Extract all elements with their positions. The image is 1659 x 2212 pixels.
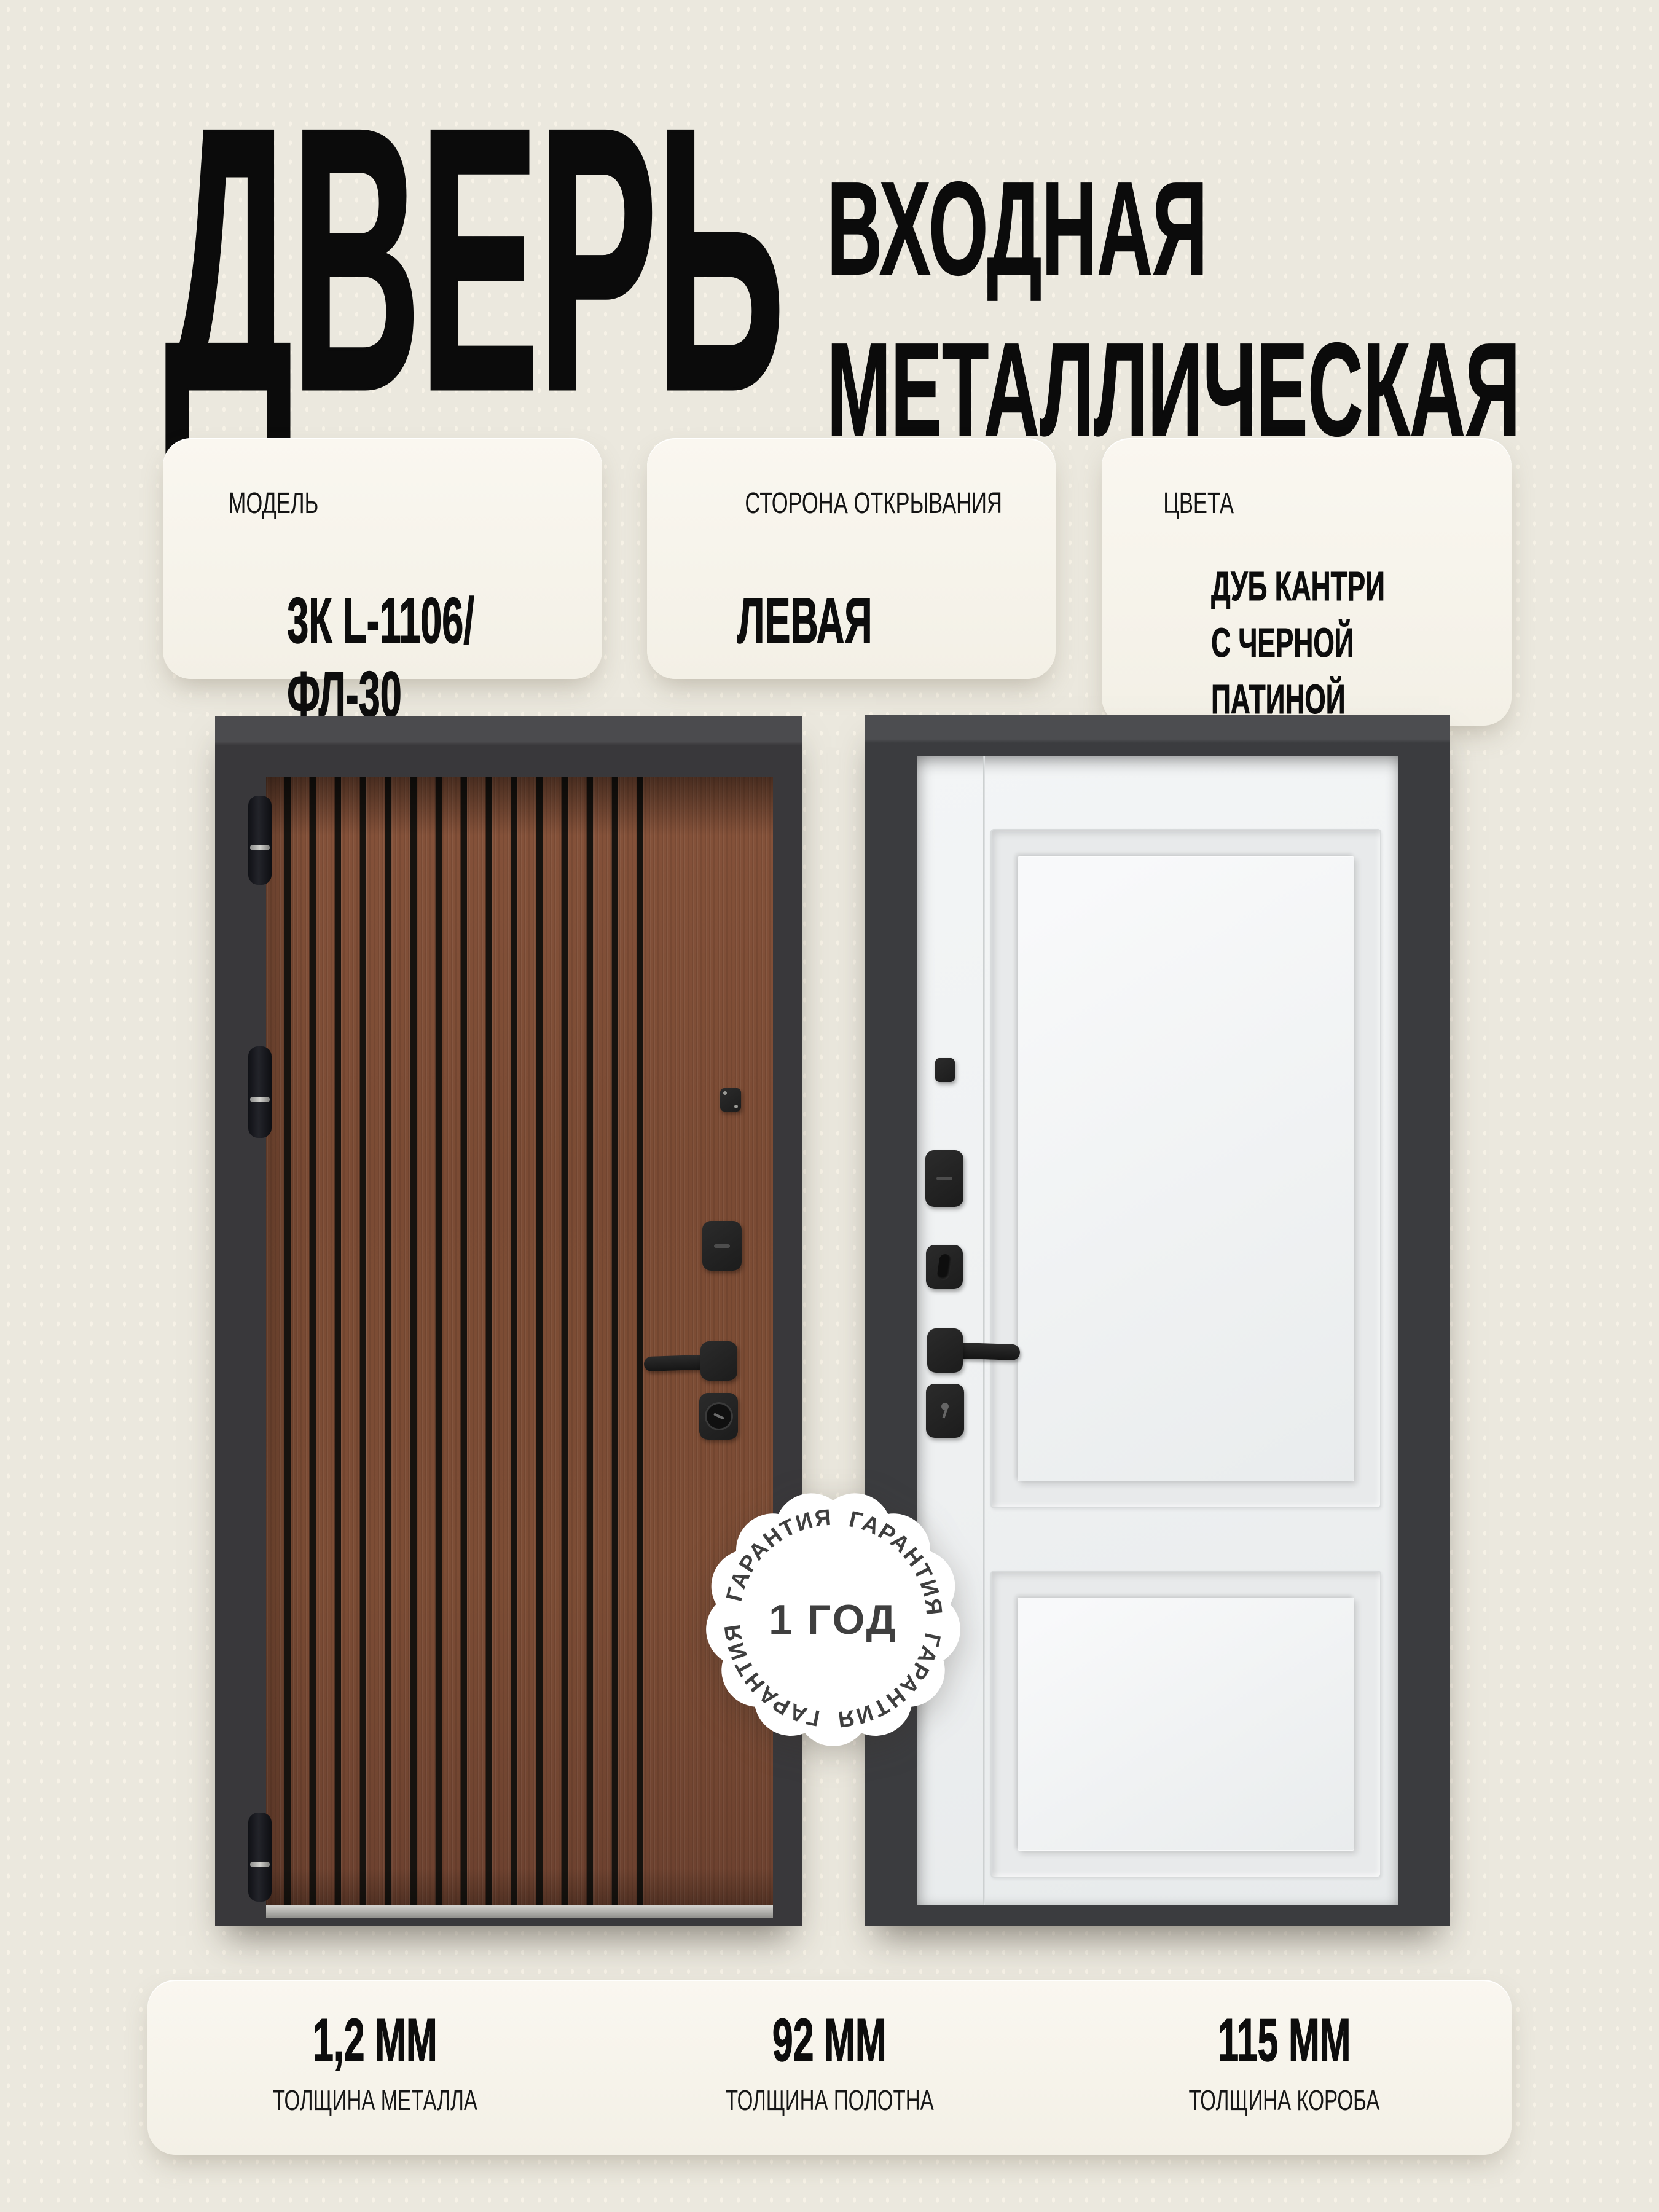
model-label: МОДЕЛЬ bbox=[229, 487, 319, 520]
raised-panel-top bbox=[990, 829, 1381, 1508]
door-hinge-bottom bbox=[248, 1813, 272, 1902]
info-card-model: МОДЕЛЬ 3К L-1106/ФЛ-30 bbox=[163, 438, 602, 679]
spec-metal-thickness: 1,2 ММ ТОЛЩИНА МЕТАЛЛА bbox=[147, 1980, 602, 2155]
colors-value-line-2: С ЧЕРНОЙ ПАТИНОЙ bbox=[1211, 615, 1450, 728]
thumbturn-escutcheon bbox=[926, 1245, 963, 1289]
info-card-colors: ЦВЕТА ДУБ КАНТРИ С ЧЕРНОЙ ПАТИНОЙ VELLUT… bbox=[1102, 438, 1512, 726]
peephole-escutcheon bbox=[935, 1058, 955, 1082]
lock-cylinder bbox=[705, 1402, 733, 1430]
subtitle-line-2: МЕТАЛЛИЧЕСКАЯ bbox=[827, 323, 1520, 455]
door-product-banner: ДВЕРЬ ВХОДНАЯ МЕТАЛЛИЧЕСКАЯ МОДЕЛЬ 3К L-… bbox=[0, 0, 1659, 2212]
spec-label: ТОЛЩИНА МЕТАЛЛА bbox=[272, 2084, 477, 2117]
spec-label: ТОЛЩИНА ПОЛОТНА bbox=[726, 2084, 934, 2117]
door-hinge-top bbox=[248, 796, 272, 885]
raised-panel-bottom bbox=[990, 1571, 1381, 1878]
colors-value-line-1: ДУБ КАНТРИ bbox=[1211, 559, 1450, 615]
lock-cylinder-escutcheon bbox=[699, 1393, 738, 1440]
spec-value: 1,2 ММ bbox=[313, 2006, 437, 2075]
keyhole-icon bbox=[941, 1403, 949, 1410]
info-card-opening-side: СТОРОНА ОТКРЫВАНИЯ ЛЕВАЯ bbox=[647, 438, 1056, 679]
lock-cover-plate bbox=[925, 1150, 963, 1207]
specifications-card: 1,2 ММ ТОЛЩИНА МЕТАЛЛА 92 ММ ТОЛЩИНА ПОЛ… bbox=[147, 1980, 1512, 2155]
door-hinge-middle bbox=[248, 1046, 272, 1138]
opening-side-value: ЛЕВАЯ bbox=[737, 584, 872, 658]
opening-side-label: СТОРОНА ОТКРЫВАНИЯ bbox=[745, 487, 1002, 520]
colors-label: ЦВЕТА bbox=[1163, 487, 1234, 520]
threshold-strip bbox=[266, 1905, 773, 1918]
subtitle-line-1: ВХОДНАЯ bbox=[827, 162, 1207, 294]
page-title: ДВЕРЬ bbox=[165, 73, 783, 447]
stile-groove bbox=[983, 756, 985, 1905]
lock-cover-plate bbox=[702, 1221, 742, 1271]
thumbturn-knob bbox=[936, 1253, 952, 1281]
spec-label: ТОЛЩИНА КОРОБА bbox=[1189, 2084, 1380, 2117]
model-value: 3К L-1106/ФЛ-30 bbox=[287, 584, 524, 732]
warranty-duration-text: 1 ГОД bbox=[769, 1596, 898, 1643]
keyhole-escutcheon bbox=[926, 1384, 964, 1438]
door-handle-rose bbox=[927, 1328, 963, 1373]
door-handle-rose bbox=[700, 1341, 737, 1381]
spec-value: 115 ММ bbox=[1218, 2006, 1351, 2075]
spec-frame-thickness: 115 ММ ТОЛЩИНА КОРОБА bbox=[1057, 1980, 1512, 2155]
spec-value: 92 ММ bbox=[772, 2006, 887, 2075]
door-leaf-white bbox=[917, 756, 1398, 1905]
wood-slat-pattern bbox=[266, 777, 661, 1905]
warranty-badge: ГАРАНТИЯ ГАРАНТИЯ ГАРАНТИЯ ГАРАНТИЯ 1 ГО… bbox=[694, 1480, 972, 1757]
peephole-escutcheon bbox=[720, 1088, 741, 1112]
spec-leaf-thickness: 92 ММ ТОЛЩИНА ПОЛОТНА bbox=[602, 1980, 1057, 2155]
